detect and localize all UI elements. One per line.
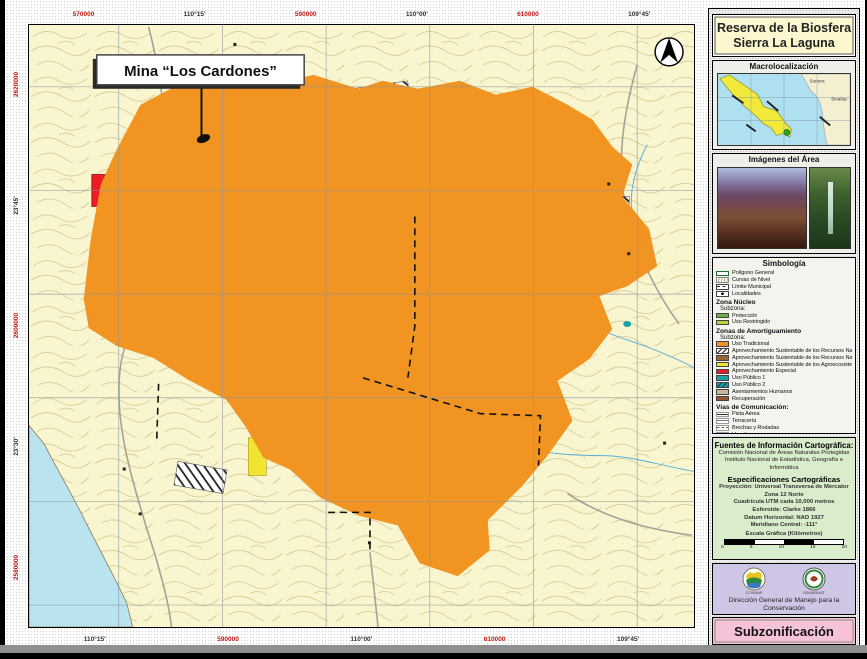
- spec-line: Proyección: Universal Transversa de Merc…: [713, 484, 855, 492]
- macrolocation-panel: Macrolocalización Sonora: [712, 60, 856, 150]
- legend-item-label: Protección: [732, 313, 757, 319]
- legend-item-label: Aprovechamiento Especial: [732, 368, 796, 374]
- legend-swatch: [716, 284, 729, 290]
- legend-body: Polígono GeneralCurvas de NivelLímite Mu…: [713, 269, 855, 434]
- coordinate-label: 109°45': [617, 636, 639, 643]
- coordinate-label: 2620000: [13, 72, 20, 97]
- legend-item-label: Veredas: [732, 432, 752, 434]
- north-arrow-icon: [655, 38, 683, 66]
- legend-item: Terracería: [716, 418, 852, 425]
- legend-item-label: Pista Aérea: [732, 411, 760, 417]
- legend-item: Veredas: [716, 431, 852, 434]
- legend-swatch: [716, 355, 729, 361]
- source-line: Comisión Nacional de Áreas Naturales Pro…: [713, 450, 855, 457]
- legend-item-label: Asentamientos Humanos: [732, 389, 792, 395]
- mine-callout-label: Mina “Los Cardones”: [124, 63, 277, 80]
- spec-line: Cuadrícula UTM cada 10,000 metros: [713, 499, 855, 507]
- coordinate-label: 109°45': [628, 11, 650, 18]
- legend-item-label: Uso Restringido: [732, 319, 770, 325]
- legend-item-label: Uso Tradicional: [732, 341, 769, 347]
- legend-panel: Simbología Polígono GeneralCurvas de Niv…: [712, 257, 856, 434]
- sheet-bottom-grey-bar: [0, 645, 867, 653]
- sources-title: Fuentes de Información Cartográfica:: [713, 441, 855, 450]
- legend-swatch: [716, 375, 729, 381]
- legend-item: Límite Municipal: [716, 284, 852, 291]
- legend-item-label: Uso Público 2: [732, 382, 765, 388]
- coordinate-label: 23°30': [13, 437, 20, 456]
- legend-item: Asentamientos Humanos: [716, 388, 852, 395]
- main-map-area: 570000110°15'590000110°00'610000109°45' …: [6, 2, 706, 648]
- legend-item: Uso Público 2: [716, 382, 852, 389]
- legend-item-label: Brechas y Rodadas: [732, 425, 779, 431]
- scale-tick: 20: [842, 545, 847, 550]
- coordinate-label: 590000: [295, 11, 317, 18]
- legend-section-header: Zonas de Amortiguamiento: [716, 328, 852, 335]
- coordinate-label: 23°45': [13, 196, 20, 215]
- coordinate-label: 2580000: [13, 555, 20, 580]
- coordinate-label: 110°15': [84, 636, 106, 643]
- legend-swatch: [716, 432, 729, 434]
- macrolocation-inset-map: Sonora Sinaloa: [717, 73, 851, 146]
- specs-lines: Proyección: Universal Transversa de Merc…: [713, 484, 855, 530]
- sidebar: Reserva de la Biosfera Sierra La Laguna …: [708, 8, 860, 648]
- sources-panel: Fuentes de Información Cartográfica: Com…: [712, 437, 856, 560]
- spec-line: Esferoide: Clarke 1866: [713, 507, 855, 515]
- legend-item: Aprovechamiento Sustentable de los Recur…: [716, 348, 852, 355]
- legend-swatch: [716, 382, 729, 388]
- legend-swatch: [716, 362, 729, 368]
- legend-item-label: Uso Público 1: [732, 375, 765, 381]
- coordinate-label: 110°15': [184, 11, 206, 18]
- scale-tick: 5: [750, 545, 753, 550]
- coordinate-label: 2600000: [13, 313, 20, 338]
- credits-panel: CONANP SEMARNAT Dirección General de Man…: [712, 563, 856, 615]
- coordinate-label: 110°00': [406, 11, 428, 18]
- reserve-location-dot: [784, 129, 790, 135]
- scale-bar-label: Escala Gráfica (Kilómetros): [713, 531, 855, 537]
- legend-item: Recuperación: [716, 395, 852, 402]
- legend-item: Aprovechamiento Sustentable de los Agroe…: [716, 361, 852, 368]
- legend-item: Aprovechamiento Especial: [716, 368, 852, 375]
- credits-organization: Dirección General de Manejo para la Cons…: [713, 597, 855, 613]
- semarnat-logo: SEMARNAT: [801, 567, 827, 595]
- mountain-landscape-photo: [717, 167, 807, 249]
- map-sheet: 570000110°15'590000110°00'610000109°45' …: [0, 0, 867, 659]
- map-title-line1: Reserva de la Biosfera: [713, 21, 855, 35]
- legend-item-label: Aprovechamiento Sustentable de los Recur…: [732, 355, 852, 361]
- legend-item: Aprovechamiento Sustentable de los Recur…: [716, 354, 852, 361]
- coordinate-labels-top: 570000110°15'590000110°00'610000109°45': [28, 7, 695, 21]
- spec-line: Zona 12 Norte: [713, 492, 855, 500]
- legend-item: Curvas de Nivel: [716, 277, 852, 284]
- specs-title: Especificaciones Cartográficas: [713, 475, 855, 484]
- spec-line: Meridiano Central: -111°: [713, 522, 855, 530]
- legend-title: Simbología: [713, 258, 855, 269]
- legend-item-label: Límite Municipal: [732, 284, 771, 290]
- legend-item-label: Terracería: [732, 418, 756, 424]
- sheet-bottom-black-bar: [0, 653, 867, 659]
- legend-swatch: [716, 291, 729, 297]
- coordinate-label: 110°00': [350, 636, 372, 643]
- legend-item: Localidades: [716, 290, 852, 297]
- legend-item: Polígono General: [716, 270, 852, 277]
- zonation-map-svg: Mina “Los Cardones”: [29, 25, 694, 627]
- legend-item-label: Aprovechamiento Sustentable de los Agroe…: [732, 362, 852, 368]
- macrolocation-title: Macrolocalización: [713, 61, 855, 72]
- legend-item: Uso Público 1: [716, 375, 852, 382]
- conanp-logo-caption: CONANP: [741, 591, 767, 595]
- conanp-logo: CONANP: [741, 567, 767, 595]
- legend-swatch: [716, 389, 729, 395]
- legend-item: Pista Aérea: [716, 411, 852, 418]
- coordinate-label: 610000: [517, 11, 539, 18]
- coordinate-labels-bottom: 110°15'590000110°00'610000109°45': [28, 632, 695, 646]
- legend-item-label: Polígono General: [732, 270, 774, 276]
- source-line: Informática: [713, 465, 855, 472]
- area-images-panel: Imágenes del Área: [712, 153, 856, 254]
- legend-swatch: [716, 271, 729, 277]
- coordinate-label: 590000: [217, 636, 239, 643]
- legend-item: Uso Tradicional: [716, 341, 852, 348]
- legend-swatch: [716, 396, 729, 402]
- source-line: Instituto Nacional de Estadística, Geogr…: [713, 457, 855, 464]
- scale-tick: 15: [810, 545, 815, 550]
- legend-swatch: [716, 369, 729, 375]
- legend-item: Brechas y Rodadas: [716, 425, 852, 432]
- legend-section-header: Vías de Comunicación:: [716, 404, 852, 411]
- waterfall-photo: [809, 167, 851, 249]
- scale-bar-ticks: 05101520: [721, 545, 847, 550]
- coordinate-label: 610000: [484, 636, 506, 643]
- legend-item-label: Curvas de Nivel: [732, 277, 770, 283]
- semarnat-logo-caption: SEMARNAT: [801, 591, 827, 595]
- state-label-sonora: Sonora: [809, 79, 824, 85]
- legend-swatch: [716, 412, 729, 418]
- scale-tick: 0: [721, 545, 724, 550]
- map-title-line2: Sierra La Laguna: [713, 36, 855, 50]
- legend-item-label: Aprovechamiento Sustentable de los Recur…: [732, 348, 852, 354]
- legend-swatch: [716, 320, 729, 326]
- sources-lines: Comisión Nacional de Áreas Naturales Pro…: [713, 450, 855, 472]
- sheet-left-border: [0, 0, 5, 659]
- legend-swatch: [716, 425, 729, 431]
- coordinate-labels-left: 262000023°45'260000023°30'2580000: [7, 24, 26, 628]
- legend-item: Protección: [716, 312, 852, 319]
- legend-swatch: [716, 341, 729, 347]
- map-canvas: Mina “Los Cardones”: [28, 24, 695, 628]
- legend-swatch: [716, 348, 729, 354]
- state-label-sinaloa: Sinaloa: [831, 96, 847, 102]
- coordinate-label: 570000: [73, 11, 95, 18]
- legend-item-label: Localidades: [732, 291, 761, 297]
- legend-swatch: [716, 418, 729, 424]
- legend-section-header: Zona Núcleo: [716, 299, 852, 306]
- legend-swatch: [716, 313, 729, 319]
- map-type-footer: Subzonificación: [712, 617, 856, 645]
- scale-tick: 10: [779, 545, 784, 550]
- legend-swatch: [716, 277, 729, 283]
- map-type-label: Subzonificación: [734, 624, 834, 639]
- legend-item: Uso Restringido: [716, 319, 852, 326]
- spec-line: Datum Horizontal: NAD 1927: [713, 515, 855, 523]
- map-title-panel: Reserva de la Biosfera Sierra La Laguna: [712, 14, 856, 57]
- area-images-title: Imágenes del Área: [713, 154, 855, 165]
- legend-item-label: Recuperación: [732, 396, 765, 402]
